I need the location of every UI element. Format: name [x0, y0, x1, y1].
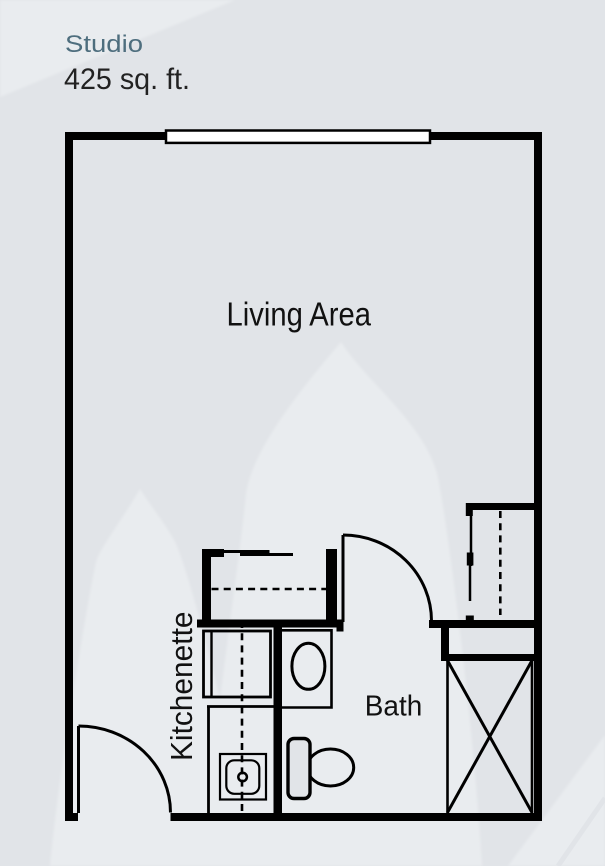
svg-text:425 sq. ft.: 425 sq. ft.: [64, 63, 190, 96]
svg-text:Kitchenette: Kitchenette: [164, 612, 199, 762]
svg-text:Bath: Bath: [365, 691, 423, 723]
svg-text:Living Area: Living Area: [227, 296, 372, 333]
svg-text:Studio: Studio: [65, 31, 143, 58]
